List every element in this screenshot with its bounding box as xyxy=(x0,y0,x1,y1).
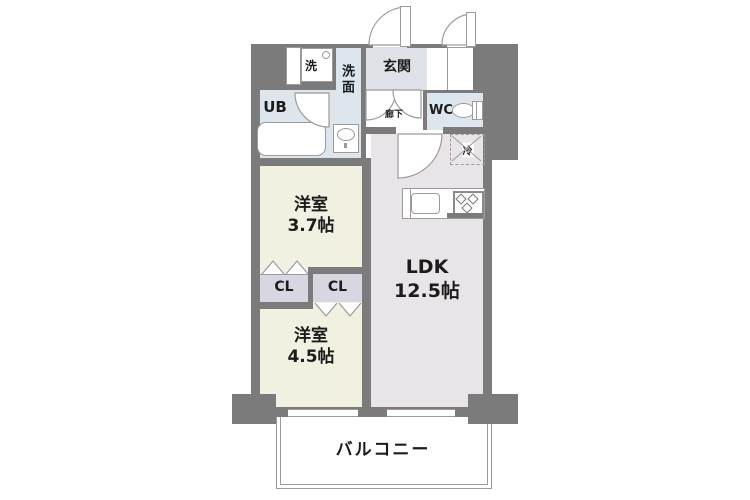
window-ldk xyxy=(387,409,455,417)
washer-pan-icon: 洗 xyxy=(301,48,333,82)
refrigerator-space: 冷 xyxy=(450,134,485,165)
western-room-3-7-label: 洋室 3.7帖 xyxy=(261,195,361,238)
wall-top-b xyxy=(407,44,447,48)
wall-top-a xyxy=(336,44,373,48)
washer-drain-icon xyxy=(322,51,330,59)
stove-burner-icon xyxy=(461,202,472,213)
counter-base-wall xyxy=(447,213,483,218)
wall-top-right xyxy=(473,44,518,90)
closet-left-label: CL xyxy=(260,279,308,297)
kitchen-sink-icon xyxy=(411,193,440,214)
entrance-label: 玄関 xyxy=(370,59,424,77)
wall-washroom-entrance xyxy=(361,47,366,158)
pipe-space xyxy=(286,47,301,85)
stove-burner-icon xyxy=(467,193,478,204)
ldk-label: LDK 12.5帖 xyxy=(377,256,477,304)
toilet-tank-icon xyxy=(472,101,483,120)
unit-bath-label: UB xyxy=(256,98,294,117)
meter-box-door-leaf xyxy=(466,12,476,47)
wall-closet-right-top xyxy=(308,267,362,274)
wall-center-vertical xyxy=(362,158,371,417)
entrance-door-leaf xyxy=(400,6,411,47)
wall-wc-left xyxy=(423,90,427,130)
washbasin-stand-icon xyxy=(344,143,347,148)
pillar-bottom-right xyxy=(468,394,518,424)
western-room-3-7-name: 洋室 xyxy=(261,195,361,216)
bathtub-icon xyxy=(257,122,326,156)
western-room-3-7-size: 3.7帖 xyxy=(261,216,361,237)
toilet-tank-line xyxy=(476,102,479,119)
refrigerator-label: 冷 xyxy=(462,142,474,157)
western-room-4-5-size: 4.5帖 xyxy=(261,347,361,368)
meter-box xyxy=(447,47,475,92)
ldk-name: LDK xyxy=(377,256,477,280)
kitchen-counter-end xyxy=(403,189,411,218)
balcony-label: バルコニー xyxy=(276,440,490,461)
window-western-room xyxy=(288,409,358,417)
hallway-label: 廊下 xyxy=(372,110,416,121)
wall-bath-bottom xyxy=(251,158,362,166)
wall-hall-bottom-left xyxy=(361,127,396,134)
western-room-4-5-label: 洋室 4.5帖 xyxy=(261,326,361,369)
wall-hall-bottom-right xyxy=(443,127,483,134)
floor-plan: 洗 冷 玄関 洗面 UB WC 廊下 洋室 xyxy=(0,0,750,500)
western-room-4-5-name: 洋室 xyxy=(261,326,361,347)
ldk-size: 12.5帖 xyxy=(377,280,477,304)
washbasin-bowl-icon xyxy=(337,128,355,141)
washbasin-icon xyxy=(333,124,359,153)
washer-label: 洗 xyxy=(305,57,317,74)
toilet-label: WC xyxy=(429,103,455,119)
pillar-bottom-left xyxy=(232,394,276,424)
wall-wc-top xyxy=(427,90,483,93)
closet-right-label: CL xyxy=(313,279,362,297)
wall-closet-left-bottom xyxy=(251,302,311,309)
washroom-label: 洗面 xyxy=(336,64,356,96)
